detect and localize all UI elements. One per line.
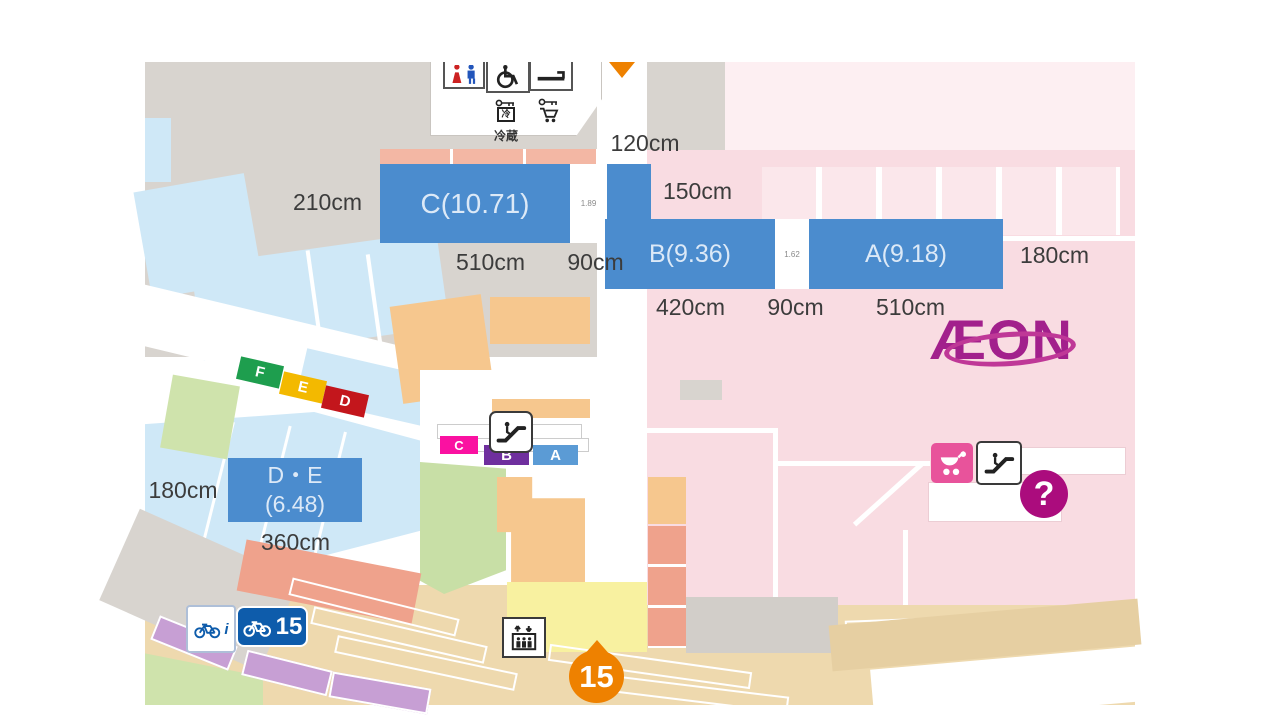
marker-c: C <box>440 436 478 454</box>
question-mark: ? <box>1034 475 1055 514</box>
building-grid-line <box>647 428 777 433</box>
map-region-gray-notch <box>680 380 722 400</box>
aeon-logo: ÆON <box>930 312 1115 370</box>
restroom-icon <box>448 65 480 85</box>
measurement-420cm: 420cm <box>648 294 733 320</box>
refrigerated-label: 冷蔵 <box>482 127 530 144</box>
zone-de-line1: D・E <box>268 461 323 490</box>
measurement-180cm-left: 180cm <box>143 477 223 503</box>
bicycle-count-sign: 15 <box>236 606 308 647</box>
bicycle-icon <box>242 616 274 638</box>
escalator-icon <box>983 449 1015 477</box>
map-region-gray-block-bottom <box>686 597 838 653</box>
restroom-sign <box>443 62 485 89</box>
marker-a: A <box>533 445 578 465</box>
measurement-510cm-c: 510cm <box>448 249 533 275</box>
zone-de-line2: (6.48) <box>265 490 325 519</box>
bicycle-info-sign: i <box>186 605 236 653</box>
counter-icon <box>535 66 567 86</box>
pin-number: 15 <box>579 659 613 695</box>
cart-locker-sign <box>529 94 569 127</box>
cart-icon <box>537 106 561 124</box>
bicycle-count: 15 <box>276 613 303 641</box>
mall-parking-map: 冷 冷蔵 C(10.71) 1.89 B(9.36) 1.62 A(9.18) … <box>0 0 1280 720</box>
parking-area <box>145 118 171 182</box>
measurement-180cm-right: 180cm <box>1012 242 1097 268</box>
map-region-orange <box>490 297 590 344</box>
zone-box-c: C(10.71) <box>380 164 570 243</box>
key-icon <box>538 98 560 106</box>
counter-sign <box>529 62 573 91</box>
key-icon <box>495 99 517 107</box>
cold-kanji: 冷 <box>497 107 514 122</box>
stroller-sign <box>931 443 973 483</box>
elevator-sign <box>502 617 546 658</box>
refrigerated-locker-sign: 冷 <box>486 94 526 127</box>
measurement-360cm: 360cm <box>253 529 338 555</box>
wheelchair-icon <box>492 65 524 89</box>
zone-box-small <box>607 164 651 219</box>
map-region-green <box>420 462 506 594</box>
zone-box-a: A(9.18) <box>809 219 1003 289</box>
building-grid-line <box>775 461 930 466</box>
info-letter: i <box>224 621 228 638</box>
measurement-150cm: 150cm <box>655 178 740 204</box>
map-region-salmon-column <box>648 526 686 648</box>
measurement-90cm-c: 90cm <box>558 249 633 275</box>
escalator-sign <box>976 441 1022 485</box>
building-grid-line <box>773 428 778 605</box>
gap-label-ba: 1.62 <box>775 219 809 289</box>
stroller-icon <box>935 447 969 479</box>
building-grid-line <box>903 530 908 605</box>
measurement-210cm: 210cm <box>285 189 370 215</box>
measurement-120cm: 120cm <box>600 130 690 156</box>
question-badge: ? <box>1020 470 1068 518</box>
zone-box-de: D・E (6.48) <box>228 458 362 522</box>
escalator-sign <box>489 411 533 453</box>
map-region-orange <box>497 477 585 583</box>
map-region-salmon-strip <box>380 149 600 165</box>
measurement-90cm-ba: 90cm <box>758 294 833 320</box>
escalator-icon <box>495 418 527 446</box>
triangle-marker-icon <box>609 62 635 78</box>
elevator-icon <box>508 623 540 653</box>
entrance-pin-15: 15 <box>569 650 624 703</box>
map-region-orange-block <box>648 477 686 524</box>
gap-label-c: 1.89 <box>570 164 607 243</box>
wheelchair-sign <box>486 62 530 93</box>
bicycle-icon <box>193 619 223 639</box>
map-region-green <box>160 375 240 460</box>
